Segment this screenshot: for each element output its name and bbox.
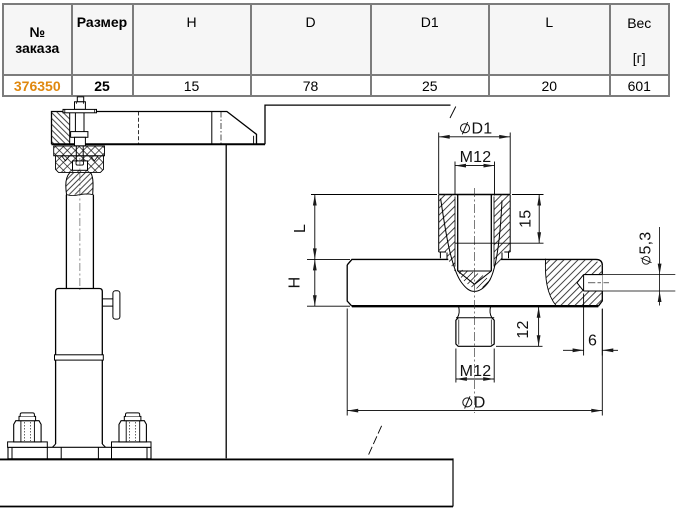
- svg-text:D1: D1: [472, 120, 493, 137]
- svg-text:5,3: 5,3: [638, 232, 655, 255]
- svg-text:H: H: [287, 277, 304, 289]
- svg-text:15: 15: [518, 210, 535, 228]
- svg-text:L: L: [292, 224, 309, 233]
- svg-text:6: 6: [588, 333, 597, 350]
- svg-text:M12: M12: [460, 149, 492, 166]
- svg-text:M12: M12: [460, 363, 492, 380]
- svg-text:D: D: [474, 395, 486, 412]
- svg-text:12: 12: [515, 320, 532, 338]
